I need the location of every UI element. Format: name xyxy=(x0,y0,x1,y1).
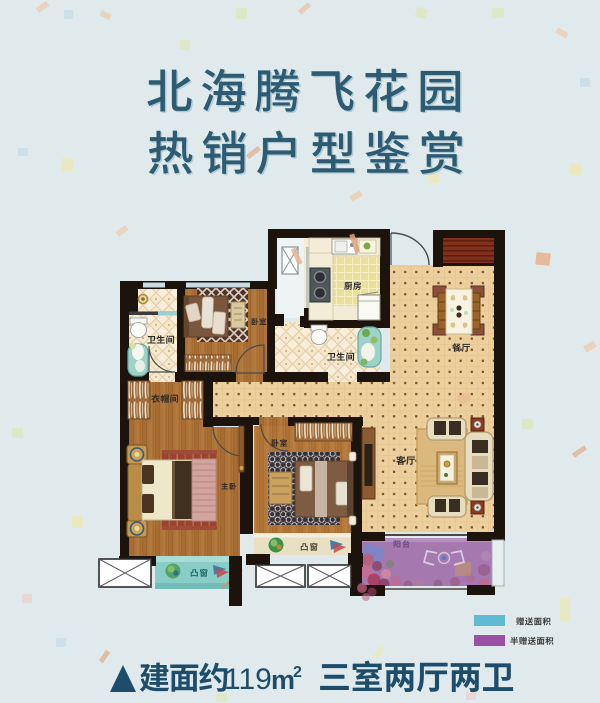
svg-text:2: 2 xyxy=(293,664,302,681)
svg-text:119: 119 xyxy=(224,663,272,696)
svg-text:m: m xyxy=(271,665,295,695)
